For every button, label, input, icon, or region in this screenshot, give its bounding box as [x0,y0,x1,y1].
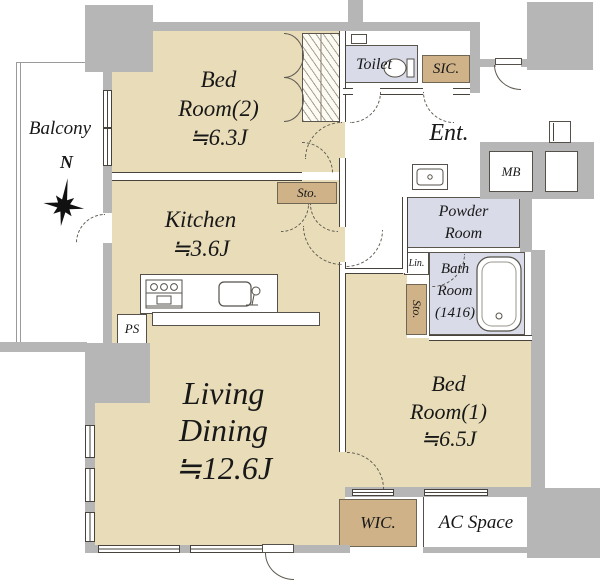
room-sto-bath: Sto. [406,284,427,335]
partition [339,31,346,122]
bathroom-label: Bath Room (1416) [429,259,481,324]
wall-right-lower [531,250,545,490]
room-sic: SIC. [422,55,470,83]
door-arc-entrance [494,65,521,90]
window [85,468,95,502]
ac-space-label: AC Space [439,512,513,534]
stove-icon [145,279,183,309]
north-label: N [60,152,73,173]
toilet-label: Toilet [343,56,405,74]
balcony-rail [16,62,17,343]
door-arc-sic [423,92,454,123]
wall-block [527,488,600,558]
balcony-rail [16,62,86,63]
sic-label: SIC. [433,61,459,78]
bathtub-icon [475,255,523,333]
window [103,90,112,128]
entrance-door-leaf [495,58,522,65]
partition [380,88,423,95]
powder-room-label: Powder Room [409,201,518,244]
ps-label: PS [125,321,139,337]
partition [339,262,346,452]
entrance-label: Ent. [418,120,480,147]
shaft-box [545,151,578,192]
window [190,545,263,553]
window [424,489,488,496]
window [352,489,394,496]
meter-door-leaf [553,123,554,141]
washer-pan [412,164,448,190]
kitchen-label: Kitchen ≒3.6J [128,206,273,264]
wall-stub [348,0,363,22]
wall-right-mid [520,195,532,252]
compass-icon [32,172,95,235]
door-arc-corridor [346,230,383,267]
balcony-label: Balcony [18,118,102,140]
window [103,128,112,166]
partition [453,88,470,95]
wall-ac-bottom [423,547,528,553]
linen-label: Lin. [409,258,425,269]
partition [112,172,302,181]
partition [402,197,408,273]
balcony-door-leaf [262,544,294,553]
room-ps: PS [117,314,147,343]
sto-kitchen-label: Sto. [297,185,317,201]
toilet-paper-holder-icon [351,34,367,44]
sto-bath-label: Sto. [409,300,424,318]
washer-icon [415,167,445,187]
bedroom1-label: Bed Room(1) ≒6.5J [386,370,511,453]
window [85,512,95,542]
room-sto-kitchen: Sto. [277,182,337,204]
wall-top [150,22,470,31]
room-wic: WIC. [339,499,417,547]
wall-entry-stub [521,59,529,67]
wall-block [85,5,153,72]
bedroom2-label: Bed Room(2) ≒6.3J [146,66,291,152]
mb-label: MB [502,164,521,180]
partition [339,158,346,227]
room-ac-space: AC Space [423,496,529,550]
balcony-rail [20,62,21,343]
partition [345,268,403,274]
sink-icon [218,279,264,309]
partition [429,335,532,341]
wall-balcony-end [0,342,87,352]
wall-block [527,2,593,70]
living-dining-label: Living Dining ≒12.6J [136,375,311,487]
door-arc-toilet [350,92,381,123]
door-arc-terrace [265,553,294,580]
floor-plan: Sto. SIC. Lin. Sto. WIC. AC Space PS [0,0,600,581]
window [98,545,180,553]
wic-label: WIC. [360,513,395,533]
room-mb: MB [489,151,533,192]
window [85,425,95,458]
wall-right-upper [470,22,480,93]
bedroom2-closet [302,33,340,122]
kitchen-counter-return [152,312,320,326]
